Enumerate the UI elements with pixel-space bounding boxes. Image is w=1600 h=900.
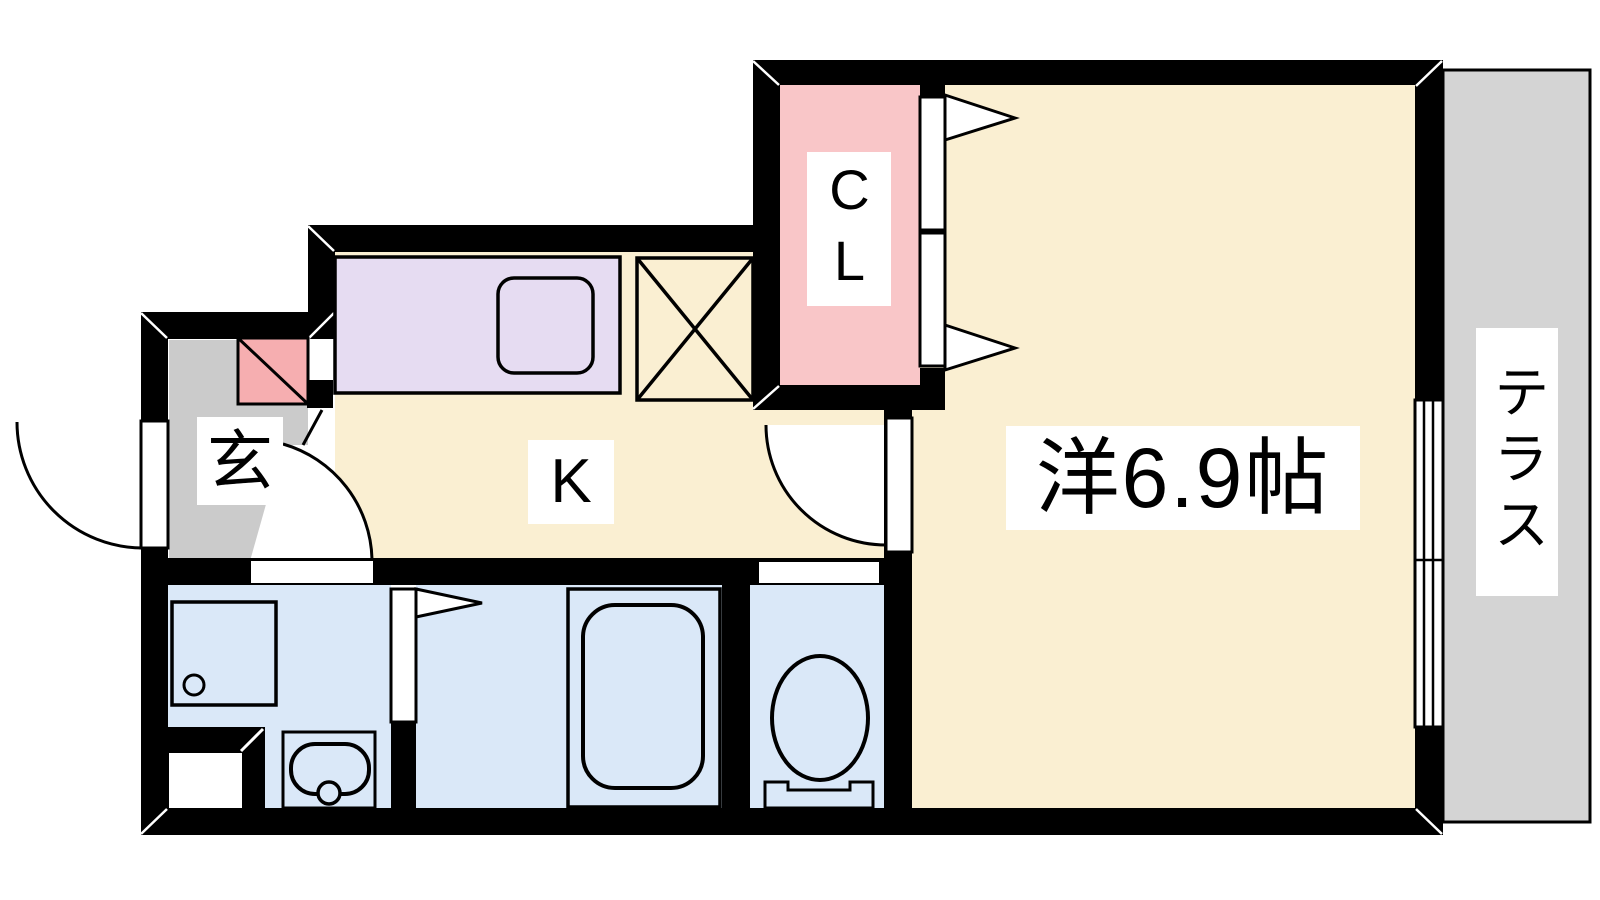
kitchen-label: K — [528, 440, 614, 524]
washroom-doorway — [250, 560, 374, 584]
wall-shoebox-stub — [307, 380, 333, 408]
wall-right-upper — [1415, 60, 1443, 400]
closet-door-panel-top — [920, 97, 945, 230]
entrance-door-swing-arc — [17, 422, 143, 548]
terrace-label: テラス — [1476, 328, 1558, 596]
wall-bottom — [141, 808, 1443, 835]
bathroom-door-leaf — [391, 589, 416, 722]
closet-door-panel-bottom — [920, 233, 945, 366]
wall-bath-toilet — [722, 585, 750, 808]
wall-closet-door-stub-bottom — [920, 368, 945, 385]
wall-closet-door-stub-top — [920, 85, 945, 97]
washing-machine-drain — [184, 675, 204, 695]
terrace-window — [1415, 400, 1443, 727]
wall-entrance-top — [141, 312, 335, 339]
wall-closet-left — [753, 60, 780, 410]
wall-closet-bottom — [753, 385, 945, 410]
kitchen-room-door-leaf — [886, 418, 912, 552]
toilet-bowl — [772, 656, 868, 780]
wall-top — [753, 60, 1443, 85]
service-space — [169, 753, 242, 808]
closet-label: CL — [807, 152, 891, 306]
window-frame — [1415, 400, 1443, 727]
toilet-doorway — [758, 561, 880, 584]
wall-kitchen-top — [308, 225, 753, 252]
wall-bath-partition-lower — [391, 722, 416, 808]
washbasin-faucet — [318, 782, 340, 804]
kitchen-sink — [498, 278, 593, 373]
entrance-label: 玄 — [197, 417, 283, 505]
floor-plan: 玄 K CL 洋6.9帖 テラス — [0, 0, 1600, 900]
entrance-door-leaf — [141, 421, 168, 548]
western-room-label: 洋6.9帖 — [1006, 426, 1360, 530]
